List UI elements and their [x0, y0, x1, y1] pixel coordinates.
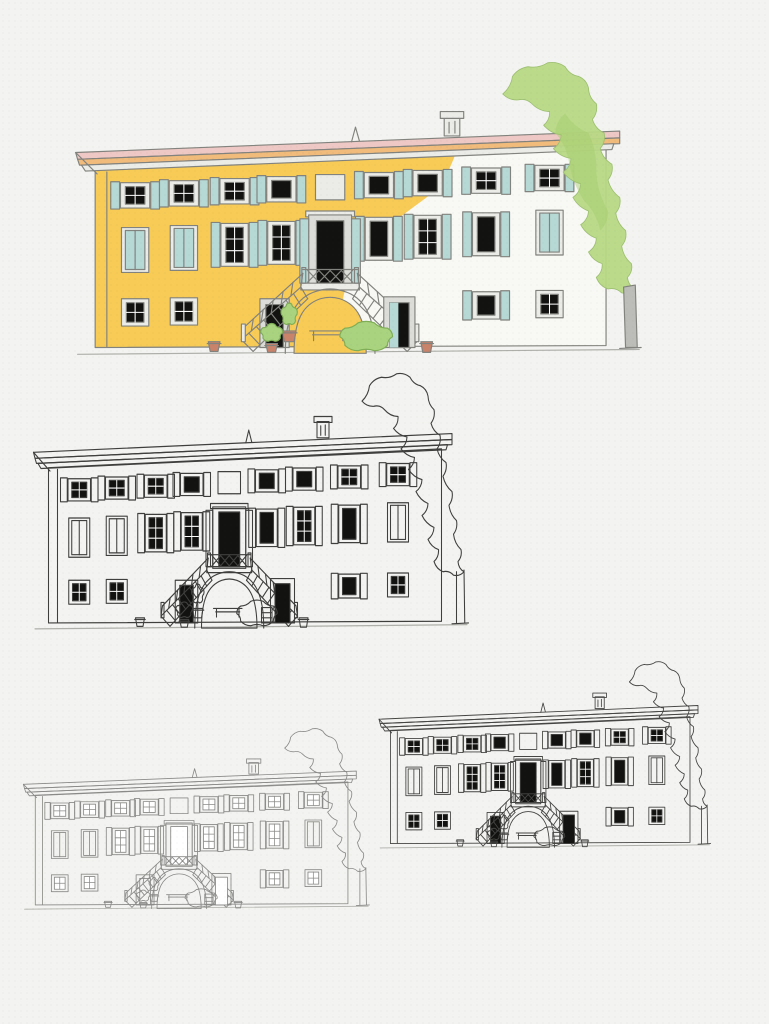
sketchbook-page: { "page": { "background": "#f3f3f1", "de… — [0, 0, 769, 1024]
villa-illustration-watercolor — [62, 55, 647, 367]
villa-illustration-ink-medium — [23, 367, 473, 640]
villa-drawing-watercolor-large — [62, 55, 647, 367]
villa-drawing-pencil-small — [15, 724, 373, 917]
villa-illustration-ink-small — [371, 657, 714, 856]
villa-drawing-ink-small — [371, 657, 714, 856]
villa-drawing-ink-medium — [23, 367, 473, 640]
villa-illustration-pencil-small — [15, 724, 373, 917]
